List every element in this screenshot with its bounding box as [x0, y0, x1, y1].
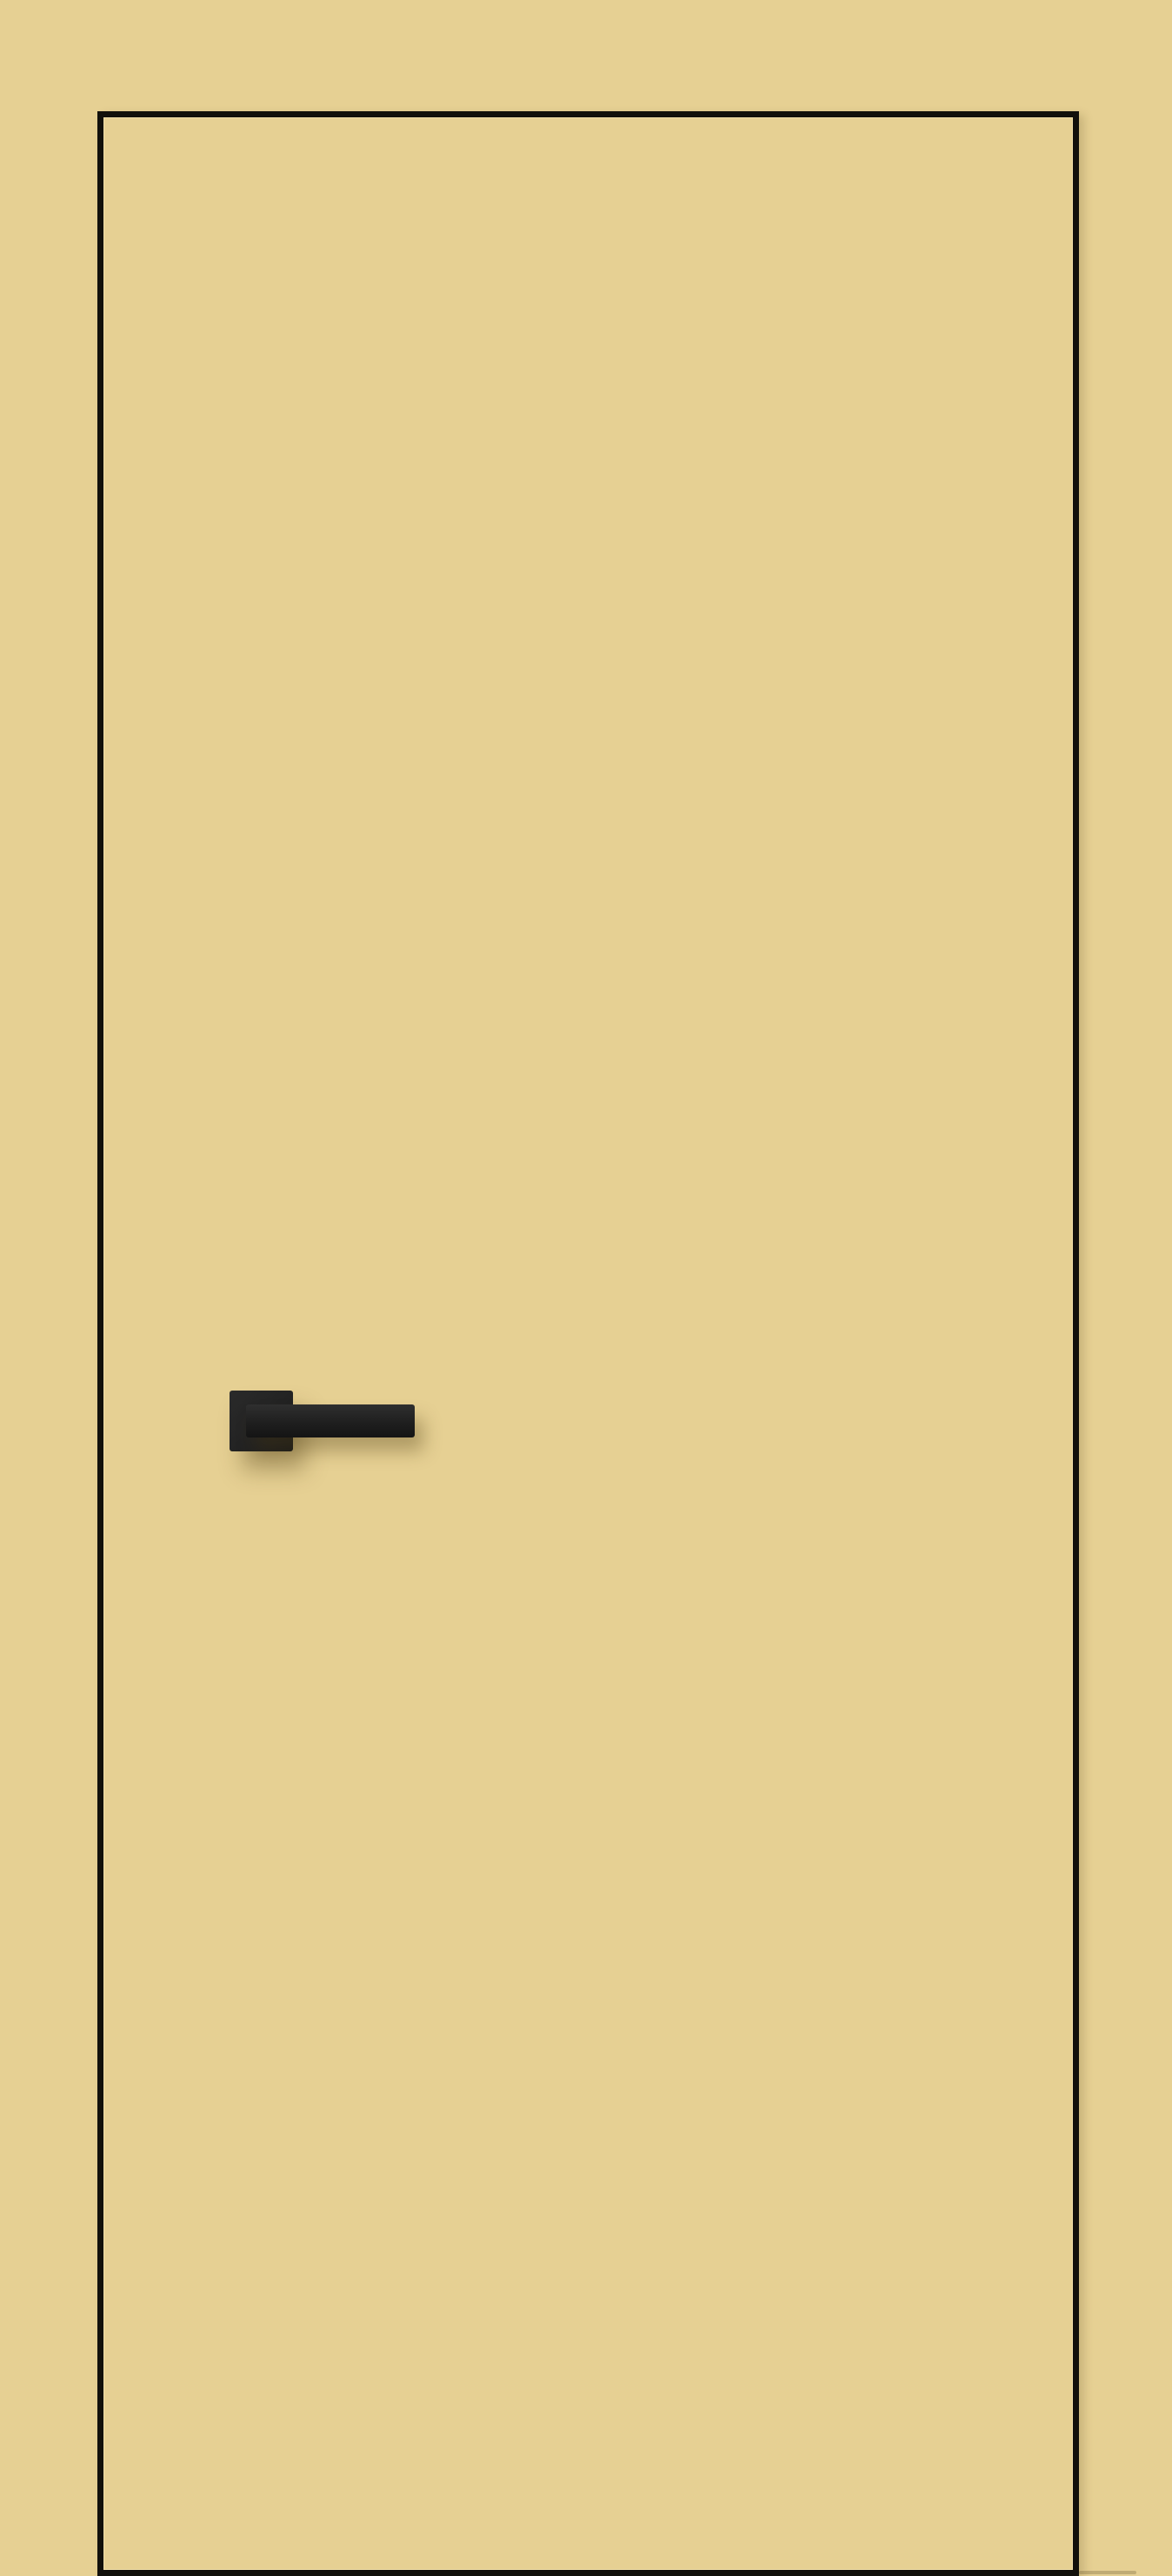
- door-leaf: [97, 111, 1079, 2576]
- handle-lever: [246, 1404, 415, 1437]
- door-product-photo: [0, 0, 1172, 2576]
- floor-shadow: [1079, 2571, 1136, 2574]
